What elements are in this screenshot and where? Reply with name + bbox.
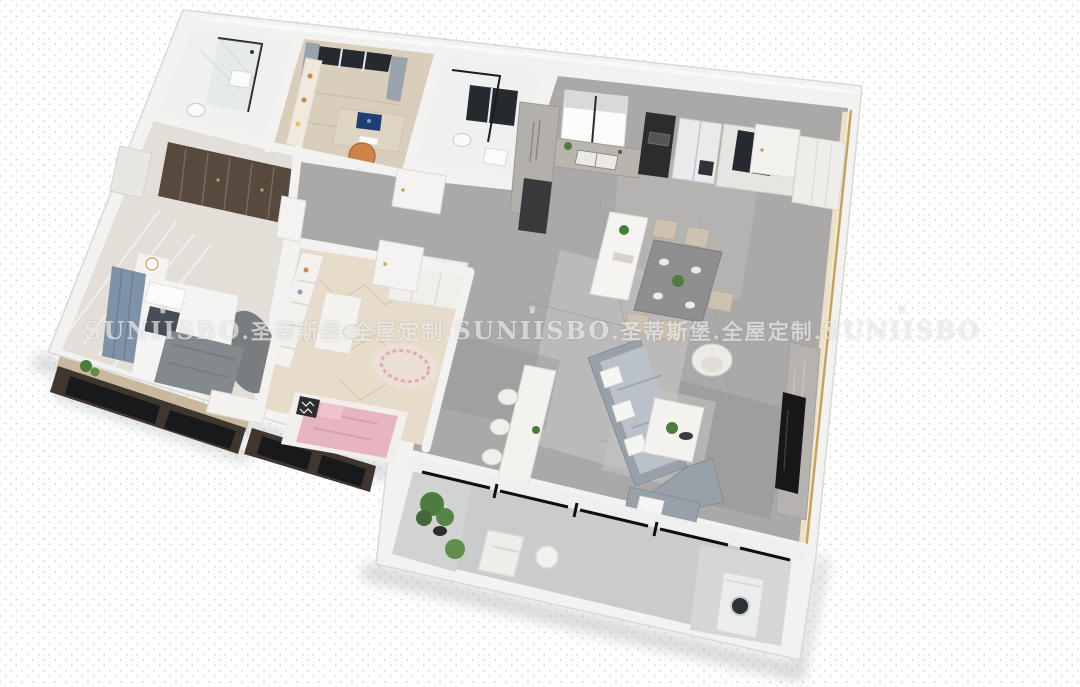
brand-text: SUNIISBO — [84, 316, 242, 345]
shelf-item — [304, 268, 309, 273]
planter-pot — [433, 526, 447, 536]
door-handle — [401, 188, 405, 192]
plant — [436, 508, 454, 526]
shelf-item — [298, 290, 303, 295]
console-plant — [532, 426, 540, 434]
watermark-chinese: .圣蒂斯堡.全屋定制. — [611, 319, 823, 344]
watermark-brand: ♛SUNIISBO — [454, 316, 612, 345]
plate — [653, 293, 663, 300]
tray — [679, 432, 693, 440]
side-table — [536, 546, 558, 568]
shower-bench — [229, 70, 252, 88]
plate — [691, 267, 701, 274]
watermark: ♛SUNIISBO.圣蒂斯堡.全屋定制.♛SUNIISBO.圣蒂斯堡.全屋定制.… — [84, 316, 981, 346]
shelf-item — [296, 122, 301, 127]
zigzag-pillow — [296, 396, 320, 418]
plate — [685, 302, 695, 309]
plant — [416, 510, 432, 526]
dining-chair — [652, 218, 678, 240]
shoe-cabinet — [518, 178, 552, 234]
watermark-brand: ♛SUNIISBO — [823, 316, 981, 345]
vanity — [483, 148, 508, 166]
door-handle — [383, 262, 387, 266]
crown-icon: ♛ — [528, 305, 537, 316]
wardrobe-handle — [216, 178, 219, 181]
shower-head — [250, 50, 254, 54]
table-lamp — [146, 258, 158, 270]
brand-text: SUNIISBO — [823, 316, 981, 345]
faucet — [618, 150, 622, 154]
toilet — [453, 134, 471, 147]
plate — [659, 259, 669, 266]
plant — [91, 368, 100, 377]
dining-chair — [684, 226, 710, 248]
plant — [80, 360, 92, 372]
floorplan-render: ♛SUNIISBO.圣蒂斯堡.全屋定制.♛SUNIISBO.圣蒂斯堡.全屋定制.… — [0, 0, 1080, 687]
watermark-chinese: .圣蒂斯堡.全屋定制. — [242, 319, 454, 344]
island-plant — [619, 225, 629, 235]
entry-door — [750, 124, 800, 178]
white-chair — [490, 419, 510, 435]
entry-wardrobe — [792, 136, 846, 210]
door — [276, 196, 306, 242]
fridge-display — [698, 160, 714, 176]
white-chair — [482, 449, 502, 465]
entry — [750, 124, 800, 178]
dining-chair — [708, 290, 734, 312]
washer-door — [731, 597, 749, 615]
white-chair — [498, 389, 518, 405]
watermark-brand: ♛SUNIISBO — [84, 316, 242, 345]
coffee-table-plant — [666, 422, 678, 434]
wardrobe-handle — [260, 188, 263, 191]
shelf-item — [302, 98, 307, 103]
table-plant — [672, 275, 684, 287]
brand-text: SUNIISBO — [454, 316, 612, 345]
door-handle — [760, 148, 764, 152]
door — [372, 240, 424, 292]
shelf-item — [308, 74, 313, 79]
monitor-screen-glow — [367, 119, 371, 123]
toilet — [187, 104, 205, 117]
plant — [445, 539, 465, 559]
plant — [564, 142, 572, 150]
armchair-seat — [701, 356, 723, 372]
crown-icon: ♛ — [897, 305, 906, 316]
door — [392, 168, 446, 214]
crown-icon: ♛ — [158, 305, 167, 316]
